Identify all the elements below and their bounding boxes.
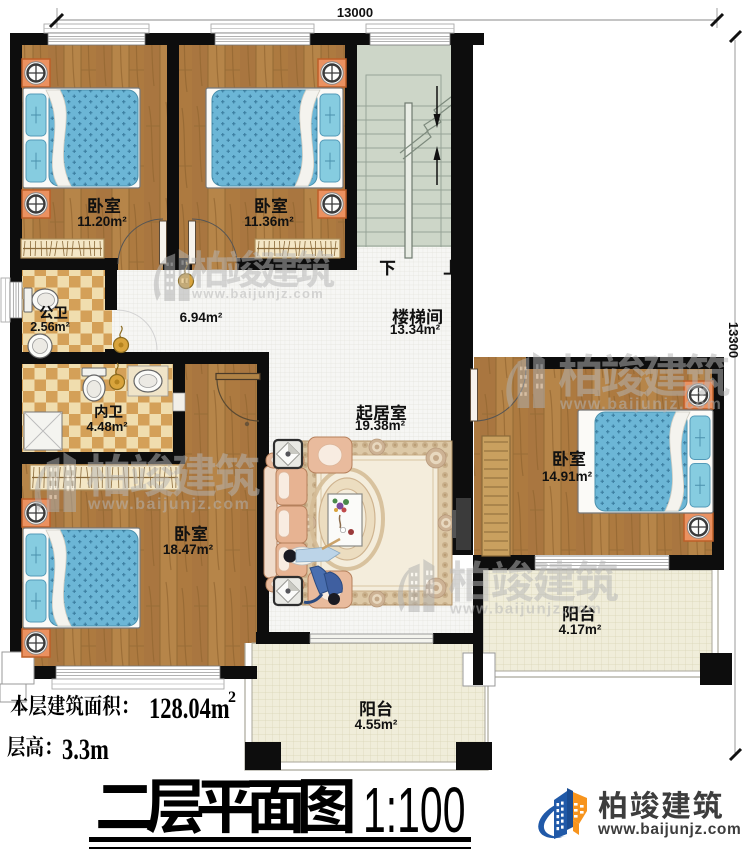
svg-text:www.baijunjz.com: www.baijunjz.com <box>559 396 722 413</box>
svg-text:18.47m²: 18.47m² <box>163 542 214 557</box>
svg-text:13.34m²: 13.34m² <box>390 322 441 337</box>
svg-text:www.baijunjz.com: www.baijunjz.com <box>87 496 250 513</box>
svg-text:128.04m: 128.04m <box>149 691 230 725</box>
svg-text:19.38m²: 19.38m² <box>355 418 406 433</box>
svg-text:1:100: 1:100 <box>363 775 465 846</box>
svg-text:4.48m²: 4.48m² <box>86 419 128 434</box>
svg-text:www.baijunjz.com: www.baijunjz.com <box>597 821 741 838</box>
svg-text:2: 2 <box>228 689 236 706</box>
svg-text:3.3m: 3.3m <box>62 732 109 766</box>
svg-text:11.36m²: 11.36m² <box>244 214 294 229</box>
svg-text:4.17m²: 4.17m² <box>559 622 602 637</box>
svg-text:4.55m²: 4.55m² <box>355 717 398 732</box>
svg-text:6.94m²: 6.94m² <box>180 310 223 325</box>
svg-text:13000: 13000 <box>337 5 373 20</box>
svg-text:www.baijunjz.com: www.baijunjz.com <box>449 600 602 617</box>
svg-text:www.baijunjz.com: www.baijunjz.com <box>191 286 324 301</box>
svg-text:2.56m²: 2.56m² <box>30 320 70 334</box>
svg-text:11.20m²: 11.20m² <box>77 214 127 229</box>
svg-text:14.91m²: 14.91m² <box>542 469 593 484</box>
svg-text:13300: 13300 <box>726 322 741 358</box>
